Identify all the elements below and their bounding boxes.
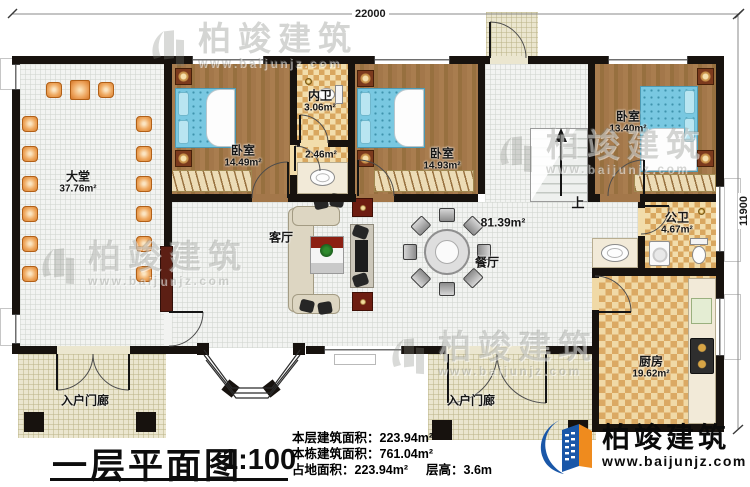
wall (592, 268, 724, 276)
pillow (178, 120, 189, 144)
sink (601, 244, 629, 262)
room-label-corridor: 2.46m² (305, 149, 337, 160)
stove (690, 338, 714, 374)
room-name: 入户门廊 (447, 393, 495, 407)
porch-pillar (24, 412, 44, 432)
lobby-chair (98, 82, 114, 98)
wall (290, 175, 297, 194)
nightstand (697, 150, 714, 167)
sink (310, 169, 335, 186)
window (608, 56, 688, 64)
sofa-cushion (317, 301, 333, 315)
wall (348, 64, 355, 194)
dimension-top: 22000 (352, 8, 389, 20)
plant (320, 244, 333, 257)
room-name: 卧室 (616, 110, 640, 124)
wall (164, 194, 252, 202)
area-info-line1: 本层建筑面积：223.94m² (292, 430, 492, 446)
window (12, 64, 20, 90)
cutting-board (691, 298, 712, 324)
dining-chair (403, 244, 417, 260)
wardrobe (374, 170, 474, 192)
room-area: 19.62m² (632, 369, 669, 380)
room-area: 81.39m² (481, 215, 526, 229)
window (12, 314, 20, 344)
wall (638, 202, 645, 208)
washing-machine (649, 241, 670, 266)
company-name: 柏竣建筑 (602, 423, 747, 452)
room-area: 13.40m² (609, 124, 646, 135)
room-name: 卧室 (231, 144, 255, 158)
floor-mat (352, 292, 373, 311)
window (716, 186, 724, 252)
pillow (178, 92, 189, 116)
wardrobe (168, 170, 252, 192)
window-sill (724, 294, 741, 360)
lobby-chair (22, 146, 38, 162)
stairs (530, 128, 588, 202)
lobby-chair (136, 116, 152, 132)
door-threshold (490, 56, 528, 64)
window (324, 346, 402, 354)
room-name: 餐厅 (475, 255, 499, 269)
toilet-tank (690, 238, 708, 245)
door-threshold (290, 145, 297, 175)
bay-window-post (262, 379, 280, 397)
door-threshold (57, 346, 130, 354)
door-threshold (638, 208, 645, 236)
door-threshold (600, 194, 640, 202)
room-name: 厨房 (639, 355, 663, 369)
room-label-lobby: 大堂 37.76m² (59, 171, 96, 196)
area-info-line2: 本栋建筑面积：761.04m² (292, 446, 492, 462)
room-area: 2.46m² (305, 149, 337, 160)
blanket (394, 89, 424, 147)
window (716, 298, 724, 356)
wall (297, 140, 300, 147)
wall (638, 236, 645, 268)
nightstand (697, 68, 714, 85)
wall (546, 346, 596, 354)
room-label-public-bath: 公卫 4.67m² (661, 212, 693, 237)
lobby-chair (46, 82, 62, 98)
nightstand (357, 150, 374, 167)
room-name: 大堂 (66, 170, 90, 184)
door-threshold (446, 346, 546, 354)
room-name: 客厅 (269, 230, 293, 244)
lobby-chair (136, 206, 152, 222)
pillow (360, 92, 371, 116)
side-cabinet (160, 246, 173, 312)
wall (588, 64, 595, 194)
room-label-living: 客厅 (269, 231, 293, 244)
wall (12, 346, 57, 354)
room-area: 3.06m² (304, 103, 336, 114)
stairs-up-text: 上 (571, 196, 584, 211)
pillow (684, 90, 695, 114)
room-label-kitchen: 厨房 19.62m² (632, 356, 669, 381)
lobby-chair (136, 176, 152, 192)
room-label-bedroom1: 卧室 14.49m² (224, 145, 261, 170)
wall (592, 268, 599, 278)
lobby-table (70, 80, 90, 100)
bay-window-post (197, 343, 209, 355)
bay-window-lines (204, 350, 300, 398)
wall (290, 64, 297, 145)
blanket (206, 89, 235, 147)
bay-window-post (293, 343, 305, 355)
lobby-chair (22, 266, 38, 282)
floor-plan-canvas: 22000 11900 (0, 0, 750, 487)
door-threshold (592, 278, 599, 310)
pillow (684, 118, 695, 142)
title-underline (50, 478, 288, 481)
living-dining-floor (172, 202, 592, 348)
wall (306, 346, 324, 354)
room-name: 卧室 (430, 147, 454, 161)
room-area: 14.49m² (224, 158, 261, 169)
window (374, 56, 450, 64)
door-threshold (252, 194, 288, 202)
bay-window-post (221, 379, 239, 397)
room-label-open-area: 81.39m² (481, 216, 526, 229)
dimension-right: 11900 (738, 193, 750, 229)
porch-pillar (136, 412, 156, 432)
company-logo: 柏竣建筑 www.baijunjz.com (532, 414, 747, 478)
room-area: 37.76m² (59, 184, 96, 195)
company-url: www.baijunjz.com (602, 453, 747, 469)
wall (478, 64, 485, 194)
lobby-chair (22, 236, 38, 252)
wall (402, 346, 446, 354)
room-label-bedroom2: 卧室 14.93m² (423, 148, 460, 173)
area-info-footprint: 占地面积：223.94m² (292, 463, 408, 477)
lobby-chair (136, 236, 152, 252)
room-name: 内卫 (308, 89, 332, 103)
watermark-brand: 柏竣建筑 (198, 22, 358, 55)
plan-scale: 1:100 (222, 444, 296, 477)
room-label-porch-left: 入户门廊 (61, 394, 109, 407)
stairs-up-label: 上 (571, 197, 584, 212)
room-label-porch-right: 入户门廊 (447, 394, 495, 407)
wall (394, 194, 478, 202)
room-label-inner-bath: 内卫 3.06m² (304, 90, 336, 115)
room-name: 入户门廊 (61, 393, 109, 407)
wall (12, 56, 20, 354)
lobby-chair (136, 266, 152, 282)
wardrobe (634, 174, 716, 192)
room-label-bedroom3: 卧室 13.40m² (609, 111, 646, 136)
wall (588, 194, 600, 202)
dining-chair (439, 282, 455, 296)
wall (328, 140, 348, 147)
room-area: 14.93m² (423, 161, 460, 172)
nightstand (357, 70, 374, 87)
wall (288, 194, 356, 202)
nightstand (175, 68, 192, 85)
toilet-tank (335, 85, 343, 104)
toilet (692, 246, 706, 264)
area-info: 本层建筑面积：223.94m² 本栋建筑面积：761.04m² 占地面积：223… (292, 430, 492, 478)
area-info-floor-height: 层高：3.6m (426, 463, 492, 477)
door-threshold (164, 312, 172, 346)
porch-back-floor (486, 12, 538, 58)
room-label-dining: 餐厅 (475, 256, 499, 269)
tv (355, 240, 368, 272)
lobby-chair (22, 176, 38, 192)
wall (640, 194, 724, 202)
room-lobby-floor (20, 64, 164, 346)
area-info-line3: 占地面积：223.94m²层高：3.6m (292, 462, 492, 478)
door-threshold (300, 140, 328, 147)
dining-chair (439, 208, 455, 222)
light-fixture (305, 78, 312, 85)
room-area: 4.67m² (661, 225, 693, 236)
dining-table (424, 229, 470, 275)
company-logo-icon (532, 414, 598, 478)
pillow (360, 120, 371, 144)
nightstand (175, 150, 192, 167)
lobby-chair (22, 206, 38, 222)
light-fixture (698, 208, 705, 215)
room-name: 公卫 (665, 211, 689, 225)
lobby-chair (136, 146, 152, 162)
lobby-chair (22, 116, 38, 132)
window-sill (334, 354, 376, 365)
window (192, 56, 264, 64)
